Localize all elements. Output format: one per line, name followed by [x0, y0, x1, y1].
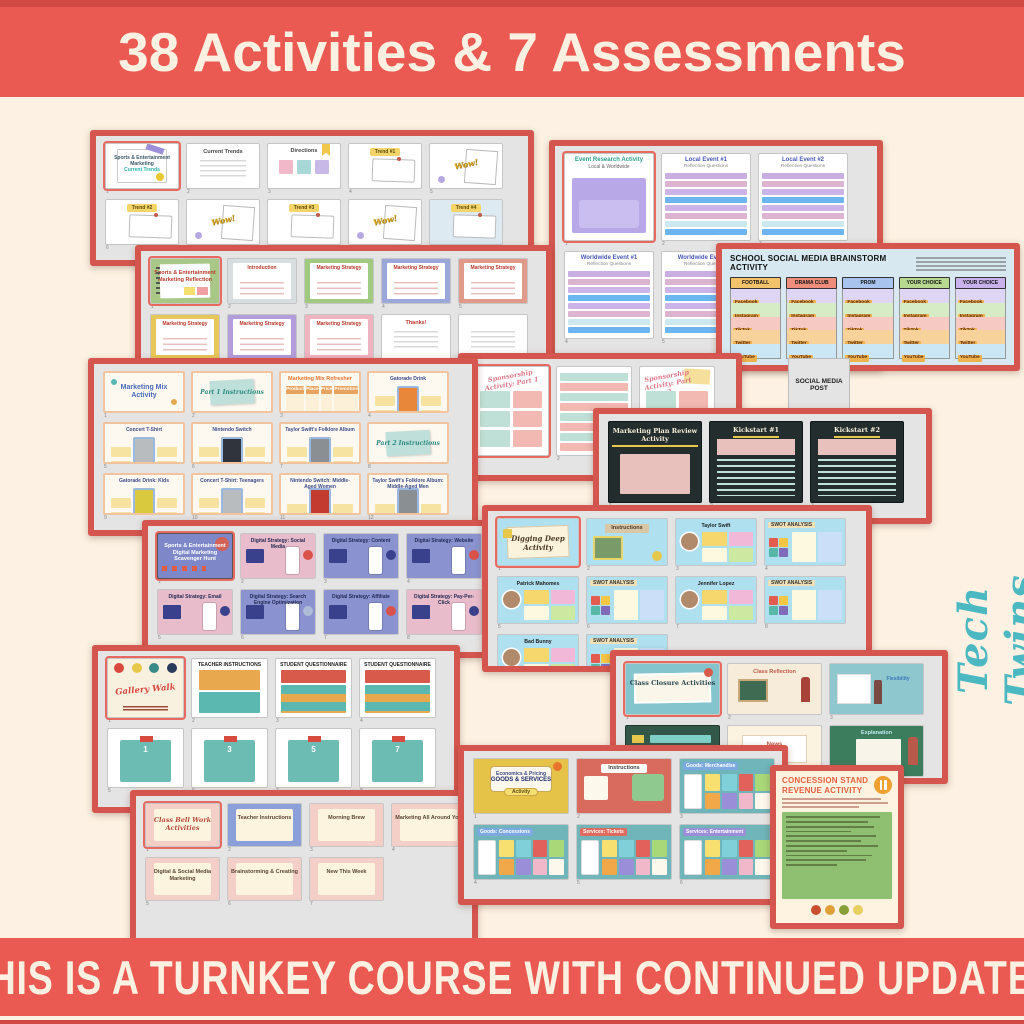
slide-thumbnail: Wow! [186, 199, 260, 245]
slide-thumbnail: Local Event #2Reflection Questions [758, 153, 848, 241]
slide-thumbnail: Digging Deep Activity [497, 518, 579, 566]
slide-thumbnail: Morning Brew [309, 803, 384, 847]
slide-thumbnail: Taylor Swift's Folklore Album [279, 422, 361, 464]
slide-cell: Taylor Swift3 [675, 518, 757, 572]
panel-goods-services: Economics & PricingGOODS & SERVICESActiv… [458, 745, 788, 905]
slide-cell: Gatorade Drink4 [367, 371, 449, 419]
slide-cell: Kickstart #23 [810, 421, 904, 509]
slide-thumbnail: Nintendo Switch: Middle-Aged Women [279, 473, 361, 515]
slide-thumbnail: Marketing Mix RefresherProductPlacePrice… [279, 371, 361, 413]
slide-cell: Digital Strategy: Content3 [323, 533, 399, 585]
slide-cell: Bad Bunny9 [497, 634, 579, 672]
top-banner: 38 Activities & 7 Assessments [0, 0, 1024, 97]
slide-thumbnail: Marketing Strategy [458, 258, 528, 304]
slide-thumbnail: Concert T-Shirt [103, 422, 185, 464]
slide-thumbnail: Instructions [576, 758, 672, 814]
slide-thumbnail: Brainstorming & Creating [227, 857, 302, 901]
slide-thumbnail: Trend #1 [348, 143, 422, 189]
slide-cell: Digging Deep Activity1 [497, 518, 579, 572]
slide-thumbnail: 5 [275, 728, 352, 788]
slide-cell: Sports & Entertainment Marketing Reflect… [150, 258, 220, 310]
slide-thumbnail: Concert T-Shirt: Teenagers [191, 473, 273, 515]
slide-cell: Economics & PricingGOODS & SERVICESActiv… [473, 758, 569, 820]
slide-cell: Trend #410 [429, 199, 503, 251]
slide-cell: Marketing Strategy5 [458, 258, 528, 310]
slide-thumbnail: Sports & Entertainment Marketing Reflect… [150, 258, 220, 304]
slide-thumbnail: Instructions [586, 518, 668, 566]
slide-thumbnail: TEACHER INSTRUCTIONS [191, 658, 268, 718]
slide-cell: Introduction2 [227, 258, 297, 310]
slide-thumbnail: Kickstart #1 [709, 421, 803, 503]
slide-cell: 15 [107, 728, 184, 794]
slide-cell: Marketing Strategy3 [304, 258, 374, 310]
concession-worksheet: CONCESSION STANDREVENUE ACTIVITY [776, 771, 898, 923]
slide-thumbnail: Marketing Strategy [227, 314, 297, 360]
slide-cell: Jennifer Lopez7 [675, 576, 757, 630]
slide-thumbnail: Thanks! [381, 314, 451, 360]
slide-cell: Wow!7 [186, 199, 260, 251]
slide-thumbnail: Marketing Strategy [381, 258, 451, 304]
slide-cell: Class Closure Activities1 [625, 663, 720, 721]
slide-thumbnail: Marketing Strategy [304, 258, 374, 304]
slide-thumbnail: Digital Strategy: Content [323, 533, 399, 579]
slide-thumbnail: Digital Strategy: Email [157, 589, 233, 635]
slide-cell: Sports & Entertainment Digital Marketing… [157, 533, 233, 585]
slide-cell: Marketing Plan Review Activity1 [608, 421, 702, 509]
slide-thumbnail: Teacher Instructions [227, 803, 302, 847]
slide-thumbnail: Taylor Swift's Folklore Album: Middle-Ag… [367, 473, 449, 515]
slide-cell: Local Event #1Reflection Questions2 [661, 153, 751, 247]
slide-cell: Instructions2 [576, 758, 672, 820]
slide-cell: Marketing Strategy4 [381, 258, 451, 310]
slide-thumbnail: Goods: Concessions [473, 824, 569, 880]
slide-cell: New This Week7 [309, 857, 384, 907]
slide-thumbnail: Marketing Strategy [304, 314, 374, 360]
slide-cell: SWOT ANALYSIS6 [586, 576, 668, 630]
slide-thumbnail: Trend #4 [429, 199, 503, 245]
slide-thumbnail: Current Trends [186, 143, 260, 189]
slide-cell: Current Trends2 [186, 143, 260, 195]
slide-cell: Gatorade Drink: Kids9 [103, 473, 185, 521]
slide-cell: Gallery Walk1 [107, 658, 184, 724]
slide-cell: STUDENT QUESTIONNAIRE4 [359, 658, 436, 724]
slide-thumbnail: Marketing Plan Review Activity [608, 421, 702, 503]
slide-thumbnail: 1 [107, 728, 184, 788]
slide-cell: Marketing Mix Activity1 [103, 371, 185, 419]
slide-thumbnail: Digital & Social Media Marketing [145, 857, 220, 901]
slide-cell: Worldwide Event #1Reflection Questions4 [564, 251, 654, 345]
slide-thumbnail: Sports & Entertainment MarketingCurrent … [105, 143, 179, 189]
slide-thumbnail: Digital Strategy: Affiliate [323, 589, 399, 635]
slide-thumbnail: SWOT ANALYSIS [764, 576, 846, 624]
brainstorm-title: SCHOOL SOCIAL MEDIA BRAINSTORM ACTIVITY [730, 255, 908, 273]
slide-thumbnail: Part 2 Instructions [367, 422, 449, 464]
slide-cell: Marketing All Around You4 [391, 803, 466, 853]
slide-thumbnail: Gatorade Drink: Kids [103, 473, 185, 515]
slide-thumbnail: SWOT ANALYSIS [586, 576, 668, 624]
slide-thumbnail: Digital Strategy: Social Media [240, 533, 316, 579]
slide-cell: 78 [359, 728, 436, 794]
slide-cell: Services: Entertainment6 [679, 824, 775, 886]
slide-thumbnail: Directions [267, 143, 341, 189]
bottom-edge-line [0, 1020, 1024, 1024]
slide-cell: Concert T-Shirt5 [103, 422, 185, 470]
slide-thumbnail: Class Reflection [727, 663, 822, 715]
slide-thumbnail: 7 [359, 728, 436, 788]
slide-cell: Event Research ActivityLocal & Worldwide… [564, 153, 654, 247]
social-media-post-card: SOCIAL MEDIA POST [788, 358, 850, 412]
slide-cell: 36 [191, 728, 268, 794]
slide-cell: Part 2 Instructions8 [367, 422, 449, 470]
slide-thumbnail: Class Bell Work Activities [145, 803, 220, 847]
brainstorm-column: YOUR CHOICEFacebookInstagramTikTokTwitte… [899, 277, 950, 359]
slide-cell: Instructions2 [586, 518, 668, 572]
panel-digging-deep: Digging Deep Activity1Instructions2Taylo… [482, 505, 872, 672]
panel-concession-stand: CONCESSION STANDREVENUE ACTIVITY [770, 765, 904, 929]
slide-cell: SWOT ANALYSIS8 [764, 576, 846, 630]
slide-cell: Digital Strategy: Pay-Per-Click8 [406, 589, 482, 641]
slide-thumbnail: Services: Tickets [576, 824, 672, 880]
brainstorm-column: FOOTBALLFacebookInstagramTikTokTwitterYo… [730, 277, 781, 359]
slide-thumbnail: Marketing Strategy [150, 314, 220, 360]
slide-cell: Digital Strategy: Email5 [157, 589, 233, 641]
slide-thumbnail: Trend #3 [267, 199, 341, 245]
slide-thumbnail: Patrick Mahomes [497, 576, 579, 624]
panel-digital-scavenger-hunt: Sports & Entertainment Digital Marketing… [142, 520, 502, 658]
slide-cell: Marketing Mix RefresherProductPlacePrice… [279, 371, 361, 419]
slide-thumbnail: Goods: Merchandise [679, 758, 775, 814]
brainstorm-column: PROMFacebookInstagramTikTokTwitterYouTub… [842, 277, 893, 359]
slide-thumbnail: STUDENT QUESTIONNAIRE [275, 658, 352, 718]
slide-cell: Goods: Merchandise3 [679, 758, 775, 820]
slide-cell: Kickstart #12 [709, 421, 803, 509]
slide-cell: 57 [275, 728, 352, 794]
slide-cell: Taylor Swift's Folklore Album7 [279, 422, 361, 470]
slide-cell: Brainstorming & Creating6 [227, 857, 302, 907]
slide-thumbnail: Services: Entertainment [679, 824, 775, 880]
slide-thumbnail: Gatorade Drink [367, 371, 449, 413]
brand-watermark: Tech Twins [950, 520, 1000, 760]
panel-social-media-brainstorm: SCHOOL SOCIAL MEDIA BRAINSTORM ACTIVITYF… [716, 243, 1020, 371]
slide-thumbnail: Marketing Mix Activity [103, 371, 185, 413]
slide-thumbnail: Digital Strategy: Website [406, 533, 482, 579]
slide-thumbnail: Introduction [227, 258, 297, 304]
slide-thumbnail: Wow! [429, 143, 503, 189]
slide-cell: TEACHER INSTRUCTIONS2 [191, 658, 268, 724]
slide-cell: Concert T-Shirt: Teenagers10 [191, 473, 273, 521]
slide-cell: Class Bell Work Activities1 [145, 803, 220, 853]
slide-cell: Digital Strategy: Affiliate7 [323, 589, 399, 641]
slide-thumbnail: Marketing All Around You [391, 803, 466, 847]
slide-cell: Digital Strategy: Social Media2 [240, 533, 316, 585]
slide-thumbnail: Jennifer Lopez [675, 576, 757, 624]
slide-cell: Trend #14 [348, 143, 422, 195]
slide-thumbnail: Taylor Swift [675, 518, 757, 566]
slide-thumbnail: Sports & Entertainment Digital Marketing… [157, 533, 233, 579]
slide-cell: Sponsorship Activity: Part 11 [473, 366, 549, 462]
brainstorm-column: DRAMA CLUBFacebookInstagramTikTokTwitter… [786, 277, 837, 359]
slide-cell: Local Event #2Reflection Questions3 [758, 153, 848, 247]
slide-thumbnail: Flexibility [829, 663, 924, 715]
slide-cell: Patrick Mahomes5 [497, 576, 579, 630]
slide-thumbnail: Gallery Walk [107, 658, 184, 718]
slide-cell: Trend #38 [267, 199, 341, 251]
slide-cell: Class Reflection2 [727, 663, 822, 721]
brainstorm-column: YOUR CHOICEFacebookInstagramTikTokTwitte… [955, 277, 1006, 359]
slide-cell: Sports & Entertainment MarketingCurrent … [105, 143, 179, 195]
slide-cell: SWOT ANALYSIS4 [764, 518, 846, 572]
slide-cell: Digital & Social Media Marketing5 [145, 857, 220, 907]
slide-cell: STUDENT QUESTIONNAIRE3 [275, 658, 352, 724]
slide-cell: Flexibility3 [829, 663, 924, 721]
slide-cell: Nintendo Switch6 [191, 422, 273, 470]
slide-thumbnail: Trend #2 [105, 199, 179, 245]
slide-thumbnail: SWOT ANALYSIS [764, 518, 846, 566]
slide-cell: Part 1 Instructions2 [191, 371, 273, 419]
slide-cell: Goods: Concessions4 [473, 824, 569, 886]
slide-thumbnail: Local Event #1Reflection Questions [661, 153, 751, 241]
tagline: THIS IS A TURNKEY COURSE WITH CONTINUED … [0, 950, 1024, 1005]
slide-thumbnail: 3 [191, 728, 268, 788]
slide-thumbnail: New This Week [309, 857, 384, 901]
slide-cell: Trend #26 [105, 199, 179, 251]
slide-thumbnail: Part 1 Instructions [191, 371, 273, 413]
slide-thumbnail: Event Research ActivityLocal & Worldwide [564, 153, 654, 241]
slide-thumbnail: Digital Strategy: Search Engine Optimiza… [240, 589, 316, 635]
promo-image: 38 Activities & 7 Assessments Sports & E… [0, 0, 1024, 1024]
panel-marketing-mix: Marketing Mix Activity1Part 1 Instructio… [88, 358, 478, 536]
slide-cell: Digital Strategy: Website4 [406, 533, 482, 585]
slide-cell: Taylor Swift's Folklore Album: Middle-Ag… [367, 473, 449, 521]
slide-cell: Nintendo Switch: Middle-Aged Women11 [279, 473, 361, 521]
fork-knife-icon [874, 776, 892, 794]
slide-thumbnail: Wow! [348, 199, 422, 245]
slide-cell: Teacher Instructions2 [227, 803, 302, 853]
slide-thumbnail: Class Closure Activities [625, 663, 720, 715]
slide-thumbnail: Worldwide Event #1Reflection Questions [564, 251, 654, 339]
slide-thumbnail: Bad Bunny [497, 634, 579, 672]
slide-cell: Wow!5 [429, 143, 503, 195]
slide-cell: Wow!9 [348, 199, 422, 251]
slide-cell: Digital Strategy: Search Engine Optimiza… [240, 589, 316, 641]
slide-thumbnail: Digital Strategy: Pay-Per-Click [406, 589, 482, 635]
headline: 38 Activities & 7 Assessments [118, 14, 906, 84]
slide-thumbnail: Nintendo Switch [191, 422, 273, 464]
slide-thumbnail: Kickstart #2 [810, 421, 904, 503]
slide-thumbnail: Economics & PricingGOODS & SERVICESActiv… [473, 758, 569, 814]
slide-cell: Directions3 [267, 143, 341, 195]
panel-bell-work: Class Bell Work Activities1Teacher Instr… [130, 790, 478, 944]
slide-thumbnail: Sponsorship Activity: Part 1 [473, 366, 549, 456]
slide-cell: Morning Brew3 [309, 803, 384, 853]
bottom-banner: THIS IS A TURNKEY COURSE WITH CONTINUED … [0, 938, 1024, 1016]
slide-thumbnail: STUDENT QUESTIONNAIRE [359, 658, 436, 718]
slide-cell: Services: Tickets5 [576, 824, 672, 886]
panel-gallery-walk: Gallery Walk1TEACHER INSTRUCTIONS2STUDEN… [92, 645, 460, 813]
